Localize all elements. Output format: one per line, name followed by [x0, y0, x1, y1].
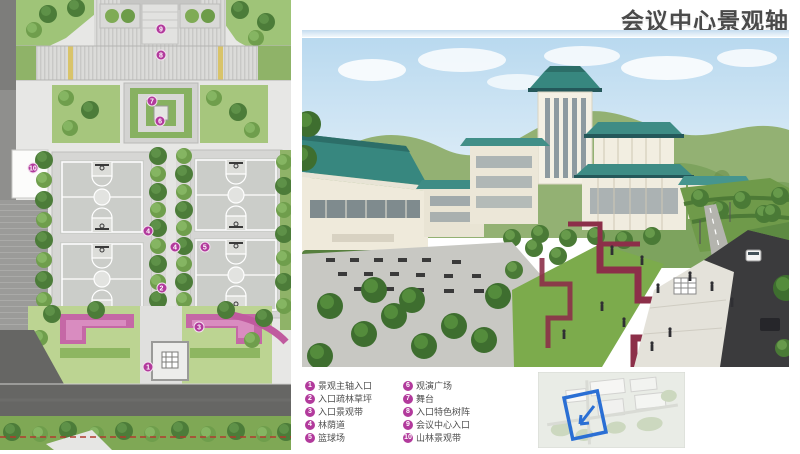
perspective-render: [302, 38, 789, 367]
legend-item: 8入口特色树阵: [403, 405, 528, 418]
legend-item: 1景观主轴入口: [305, 379, 400, 392]
legend-number-badge: 3: [305, 407, 315, 417]
render-illustration: [302, 38, 789, 367]
legend-label: 景观主轴入口: [318, 379, 372, 392]
legend-number-badge: 10: [403, 433, 413, 443]
legend-item: 2入口疏林草坪: [305, 392, 400, 405]
locator-map-drawing: [538, 372, 685, 448]
master-plan-drawing: [0, 0, 291, 450]
legend-item: 3入口景观带: [305, 405, 400, 418]
header: 会议中心景观轴: [302, 0, 789, 38]
legend-label: 观演广场: [416, 379, 452, 392]
legend-label: 篮球场: [318, 431, 345, 444]
legend-item: 9会议中心入口: [403, 418, 528, 431]
title-accent-bar: [302, 30, 789, 37]
legend-number-badge: 2: [305, 394, 315, 404]
legend-number-badge: 7: [403, 394, 413, 404]
legend-label: 舞台: [416, 392, 434, 405]
legend-item: 6观演广场: [403, 379, 528, 392]
legend-label: 会议中心入口: [416, 418, 470, 431]
legend-item: 7舞台: [403, 392, 528, 405]
locator-map: [538, 372, 685, 448]
legend-label: 山林景观带: [416, 431, 461, 444]
legend-number-badge: 9: [403, 420, 413, 430]
legend-number-badge: 5: [305, 433, 315, 443]
legend-number-badge: 8: [403, 407, 413, 417]
legend-item: 4林荫道: [305, 418, 400, 431]
legend-number-badge: 4: [305, 420, 315, 430]
legend-item: 5篮球场: [305, 431, 400, 444]
master-plan: 987610445231: [0, 0, 291, 450]
legend-number-badge: 6: [403, 381, 413, 391]
legend-item: 10山林景观带: [403, 431, 528, 444]
legend: 1景观主轴入口2入口疏林草坪3入口景观带4林荫道5篮球场 6观演广场7舞台8入口…: [305, 379, 530, 454]
legend-col-1: 1景观主轴入口2入口疏林草坪3入口景观带4林荫道5篮球场: [305, 379, 400, 444]
legend-label: 入口景观带: [318, 405, 363, 418]
legend-label: 入口特色树阵: [416, 405, 470, 418]
legend-label: 林荫道: [318, 418, 345, 431]
legend-number-badge: 1: [305, 381, 315, 391]
legend-col-2: 6观演广场7舞台8入口特色树阵9会议中心入口10山林景观带: [403, 379, 528, 444]
legend-label: 入口疏林草坪: [318, 392, 372, 405]
